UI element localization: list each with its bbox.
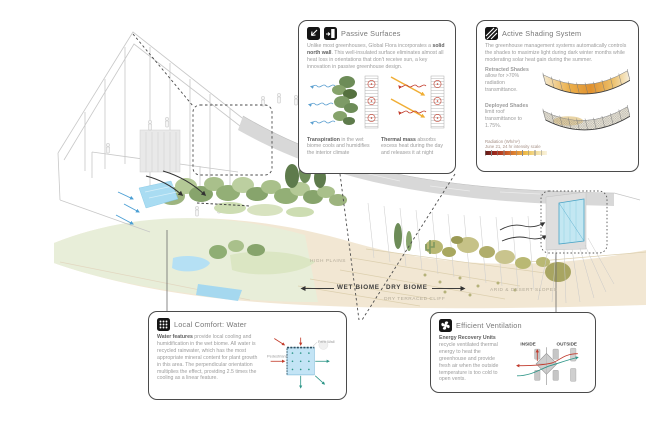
- label-wet-biome: WET BIOME: [337, 284, 380, 291]
- deployed-shades-roof: [540, 103, 630, 137]
- passive-surfaces-header: Passive Surfaces: [307, 27, 447, 40]
- passive-surfaces-title: Passive Surfaces: [341, 29, 401, 38]
- water-cascade-arrows: [116, 192, 139, 224]
- reflected-heat-icon: [307, 27, 320, 40]
- local-comfort-body: Water features provide local cooling and…: [157, 334, 262, 382]
- label-dry-biome: DRY BIOME: [386, 284, 428, 291]
- outside-label: OUTSIDE: [557, 341, 577, 346]
- sunlight-arrows: [391, 77, 424, 117]
- thermal-mass-panel: [391, 76, 444, 128]
- passive-surfaces-body: Unlike most greenhouses, Global Flora in…: [307, 43, 447, 71]
- pedestrians-label: Pedestrians: [267, 354, 288, 359]
- callout-local-comfort-water: Local Comfort: Water Water features prov…: [148, 311, 347, 400]
- passive-surfaces-captions: Transpiration in the wet biome cools and…: [307, 137, 447, 157]
- efficient-ventilation-title: Efficient Ventilation: [456, 321, 522, 330]
- radiation-legend: Radiation (Wh/m²) June 21, 24 hr intensi…: [485, 139, 630, 155]
- thermal-mass-caption: Thermal mass absorbs excess heat during …: [381, 137, 447, 157]
- label-dry-terraced-cliff: DRY TERRACED CLIFF: [384, 297, 445, 302]
- energy-recovery-diagram: INSIDE OUTSIDE: [506, 335, 587, 389]
- callout-efficient-ventilation: Efficient Ventilation Energy Recovery Un…: [430, 312, 596, 393]
- deployed-shades-caption: Deployed Shades limit roof transmittance…: [485, 103, 535, 130]
- diagram-canvas: HIGH PLAINS WET BIOME DRY BIOME DRY TERR…: [0, 0, 650, 421]
- retracted-shades-roof: [540, 67, 630, 101]
- transpiration-panel: [309, 76, 378, 128]
- local-comfort-header: Local Comfort: Water: [157, 318, 338, 331]
- hatched-shade-icon: [485, 27, 498, 40]
- insulated-wall-icon: [324, 27, 337, 40]
- efficient-ventilation-body: Energy Recovery Units recycle ventilated…: [439, 335, 501, 383]
- fern-wall-label: Fern Wall: [318, 339, 335, 344]
- label-arid-desert-slopes: ARID & DESERT SLOPES: [490, 288, 557, 293]
- retracted-shades-caption: Retracted Shades allow for >70% radiatio…: [485, 67, 535, 94]
- active-shading-body: The greenhouse management systems automa…: [485, 43, 630, 64]
- label-high-plains: HIGH PLAINS: [310, 259, 346, 264]
- callout-active-shading: Active Shading System The greenhouse man…: [476, 20, 639, 172]
- fern-plant: [332, 76, 358, 125]
- fan-icon: [439, 319, 452, 332]
- callout-passive-surfaces: Passive Surfaces Unlike most greenhouses…: [298, 20, 456, 174]
- active-shading-header: Active Shading System: [485, 27, 630, 40]
- radiation-gradient-bar: [485, 151, 547, 155]
- water-feature-plan-diagram: Fern Wall Pedestrians: [267, 334, 338, 394]
- passive-surfaces-diagram: [307, 74, 447, 130]
- local-comfort-title: Local Comfort: Water: [174, 320, 247, 329]
- transpiration-caption: Transpiration in the wet biome cools and…: [307, 137, 373, 157]
- inside-label: INSIDE: [520, 341, 535, 346]
- active-shading-title: Active Shading System: [502, 29, 581, 38]
- evaporation-dots-icon: [157, 318, 170, 331]
- cool-moist-air-arrows: [309, 85, 335, 123]
- efficient-ventilation-header: Efficient Ventilation: [439, 319, 587, 332]
